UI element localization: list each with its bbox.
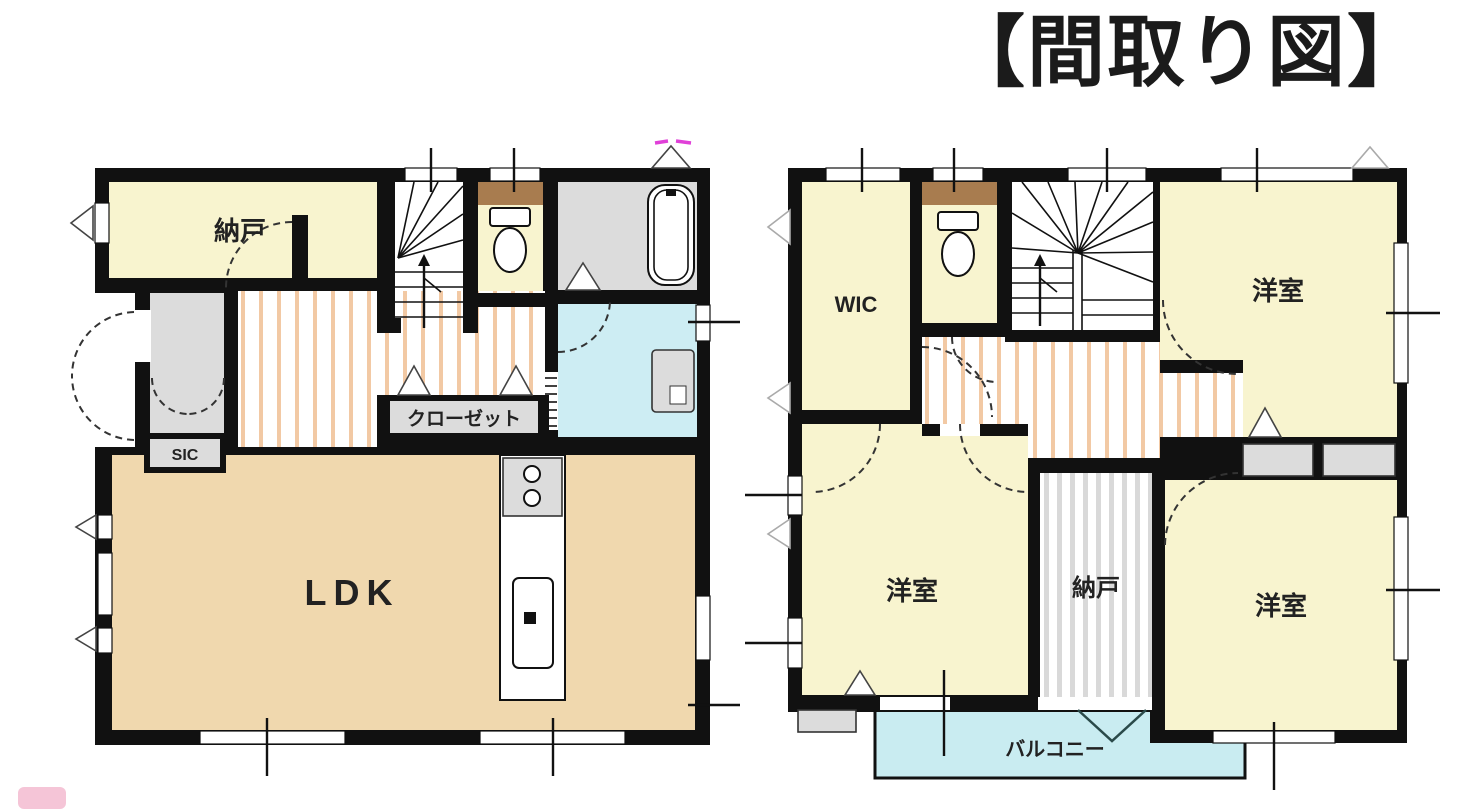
- washing-machine-icon: [652, 350, 694, 412]
- vent-icon: [768, 210, 790, 244]
- vent-icon: [71, 206, 93, 240]
- toilet-shelf-2f: [922, 182, 997, 205]
- vent-mark-magenta: [676, 141, 691, 143]
- room-label-closet: クローゼット: [407, 407, 521, 430]
- closet-2f: [1323, 444, 1395, 476]
- vent-icon: [76, 627, 96, 651]
- floor-plan-2f: WIC 洋室 洋室 納戸 洋室 バルコニー: [740, 125, 1440, 805]
- bathtub-icon: [648, 185, 694, 285]
- floor-plan-1f: 納戸 SIC クローゼット LDK: [40, 125, 740, 805]
- room-ldk: [112, 455, 695, 730]
- toilet-shelf-1f: [478, 182, 543, 205]
- kitchen-counter: [500, 455, 565, 700]
- closet-2f: [1243, 444, 1313, 476]
- vent-icon: [768, 383, 790, 413]
- room-label-wic: WIC: [835, 292, 878, 317]
- floor-plan-sheet: 【間取り図】: [0, 0, 1461, 810]
- room-label-bedroom-bottom-right: 洋室: [1255, 591, 1307, 621]
- vent-icon: [76, 515, 96, 539]
- toilet-icon-2f: [938, 212, 978, 276]
- room-label-storage-1f: 納戸: [214, 216, 266, 246]
- room-label-bedroom-top-right: 洋室: [1252, 276, 1304, 306]
- vent-icon: [768, 519, 790, 548]
- room-bedroom-top-right: [1160, 182, 1397, 360]
- entrance-1f: [150, 293, 224, 447]
- room-label-ldk: LDK: [305, 572, 400, 613]
- watermark-blob: [18, 787, 66, 809]
- vent-mark-magenta: [655, 141, 668, 143]
- room-label-bedroom-bottom-left: 洋室: [886, 576, 938, 606]
- closet-2f: [798, 710, 856, 732]
- entry-notch: [60, 293, 135, 447]
- room-label-sic: SIC: [172, 447, 199, 464]
- room-bedroom-bottom-left: [802, 424, 1028, 695]
- vent-icon: [652, 146, 690, 168]
- room-label-storage-2f: 納戸: [1072, 574, 1120, 602]
- room-label-balcony: バルコニー: [1005, 738, 1105, 761]
- vent-icon: [1352, 147, 1388, 168]
- toilet-icon-1f: [490, 208, 530, 272]
- page-title: 【間取り図】: [947, 8, 1427, 98]
